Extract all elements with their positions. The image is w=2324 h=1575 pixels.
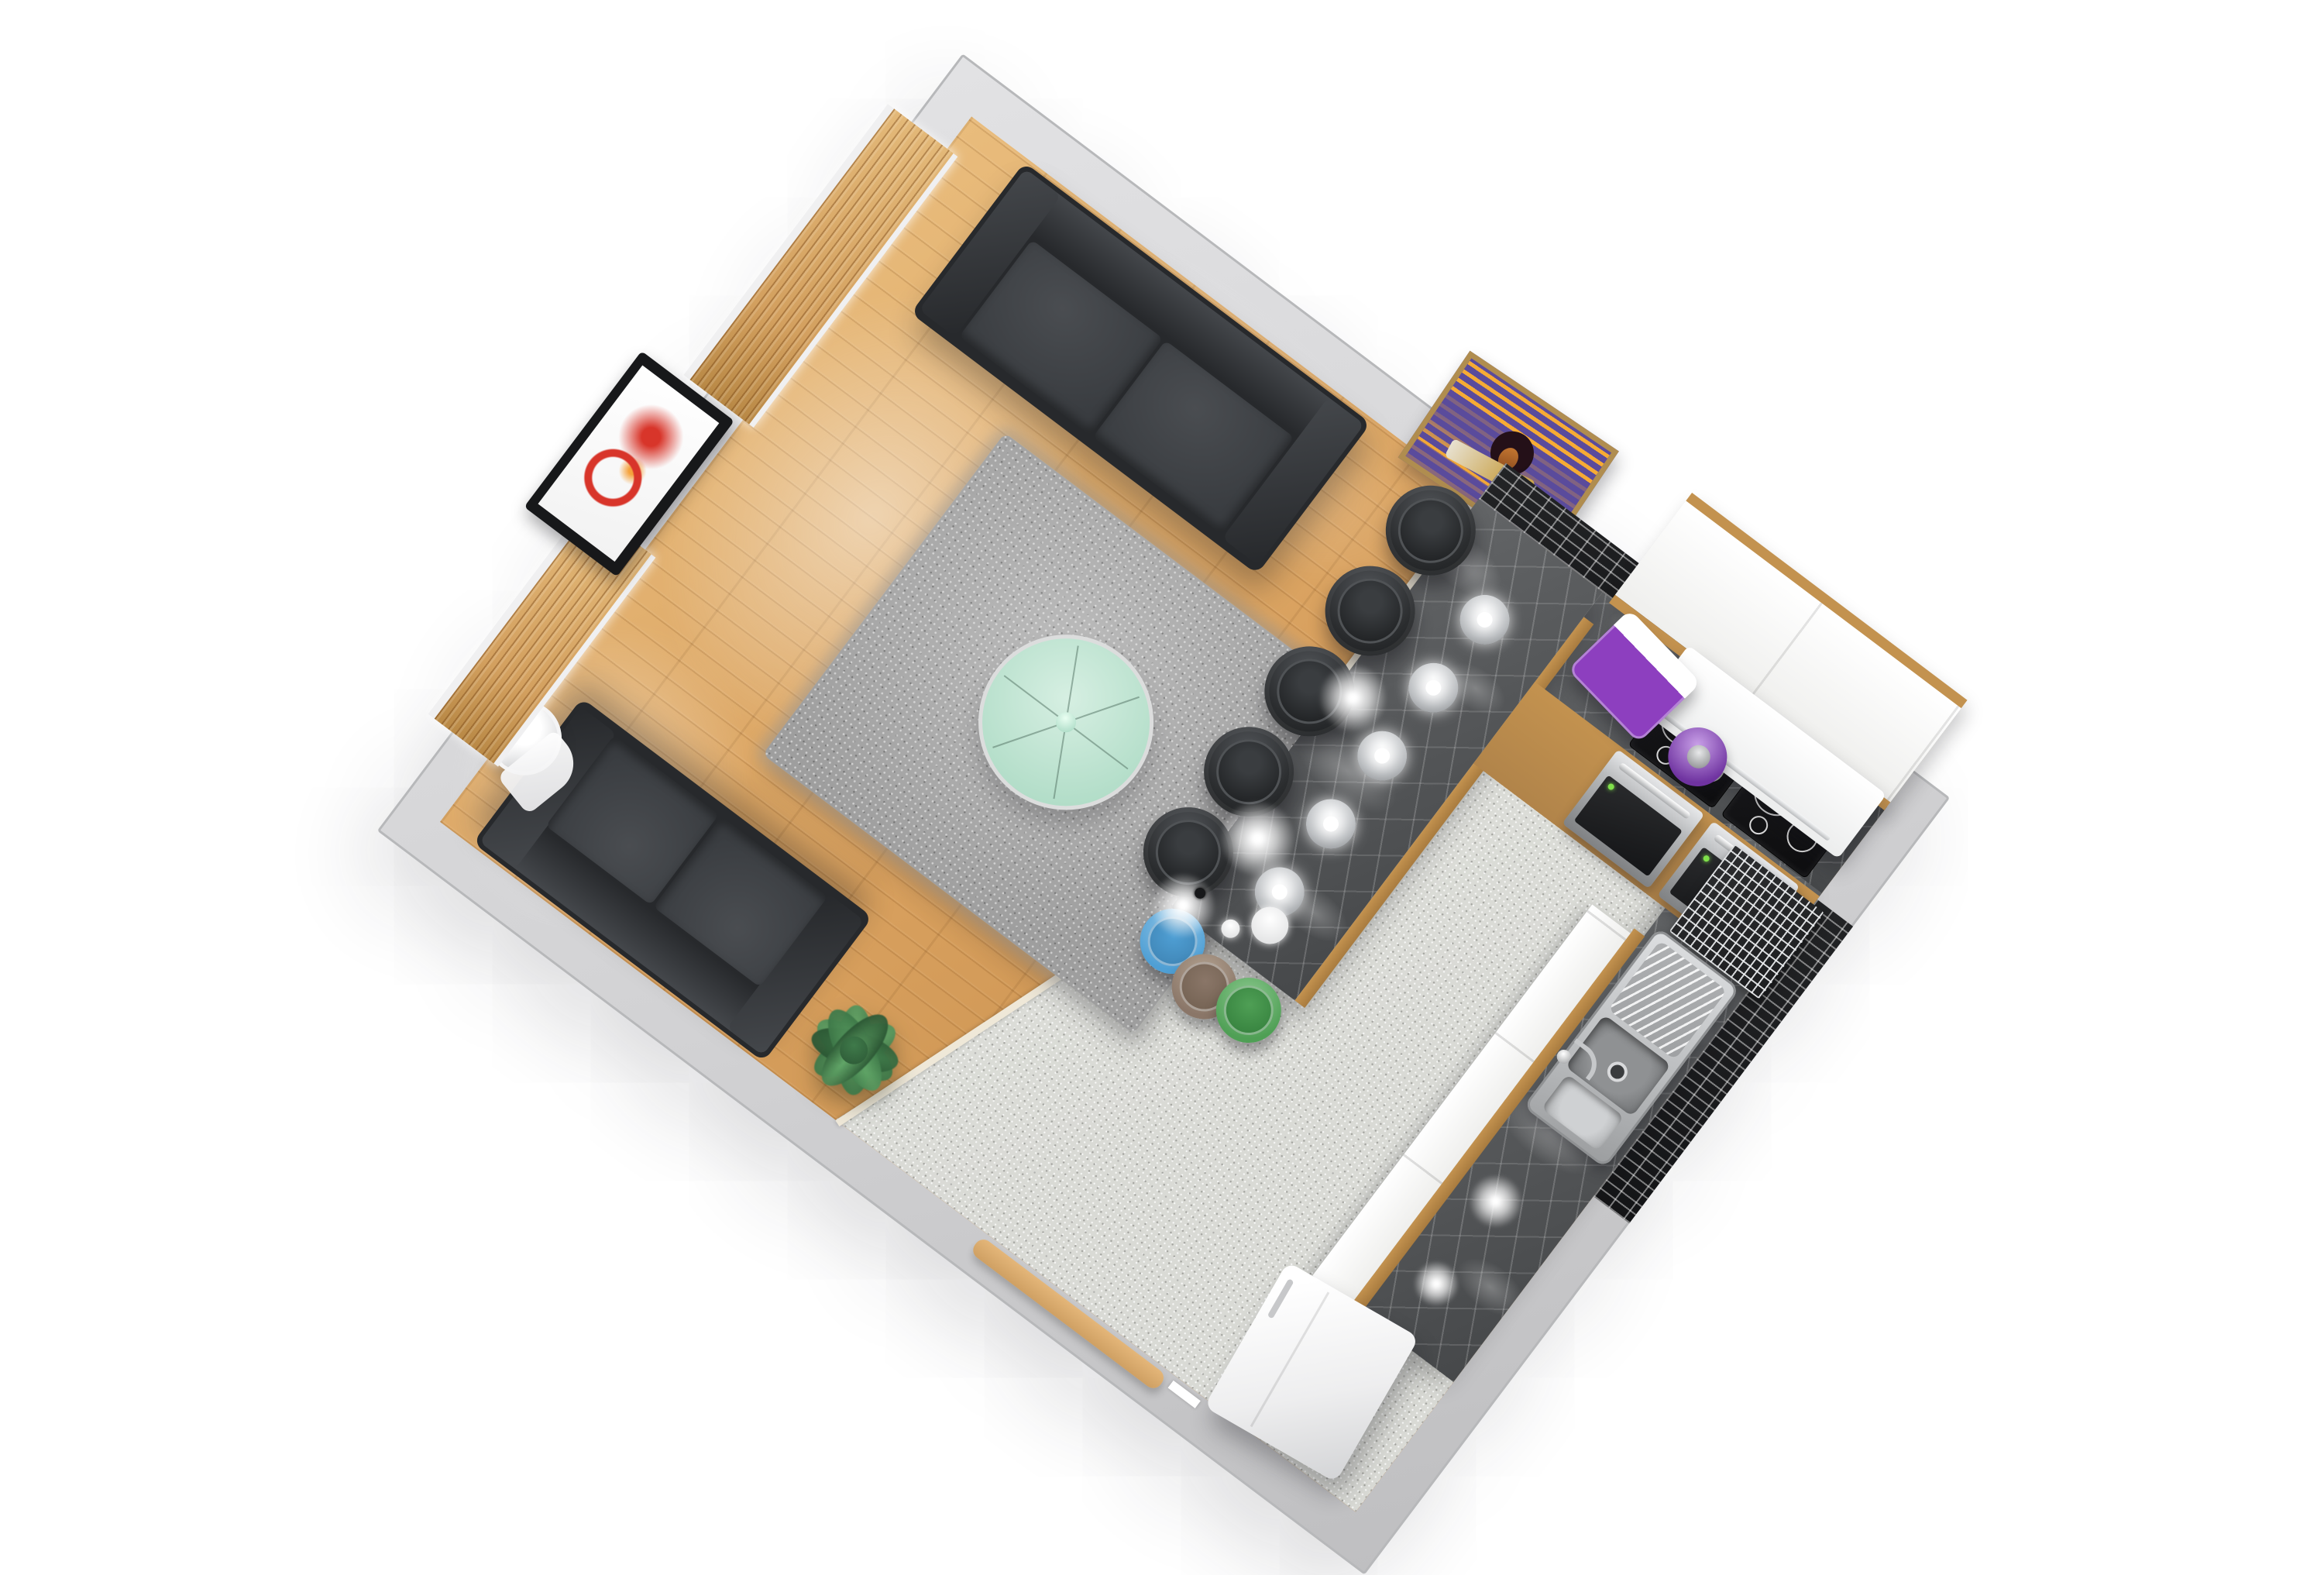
pendant-bulb: [1474, 609, 1496, 631]
fridge-door-seam: [1250, 1291, 1330, 1427]
pendant-bulb: [1371, 745, 1393, 767]
room-interior: [440, 116, 1887, 1511]
pendant-bulb: [1269, 881, 1291, 903]
burner-ring: [1745, 812, 1772, 838]
room: [377, 53, 1951, 1575]
pendant-bulb: [1320, 813, 1342, 834]
table-hub: [1052, 708, 1080, 736]
floorplan-canvas: [0, 0, 2324, 1549]
kettle-lid: [1683, 741, 1715, 773]
pendant-bulb: [1422, 677, 1444, 699]
